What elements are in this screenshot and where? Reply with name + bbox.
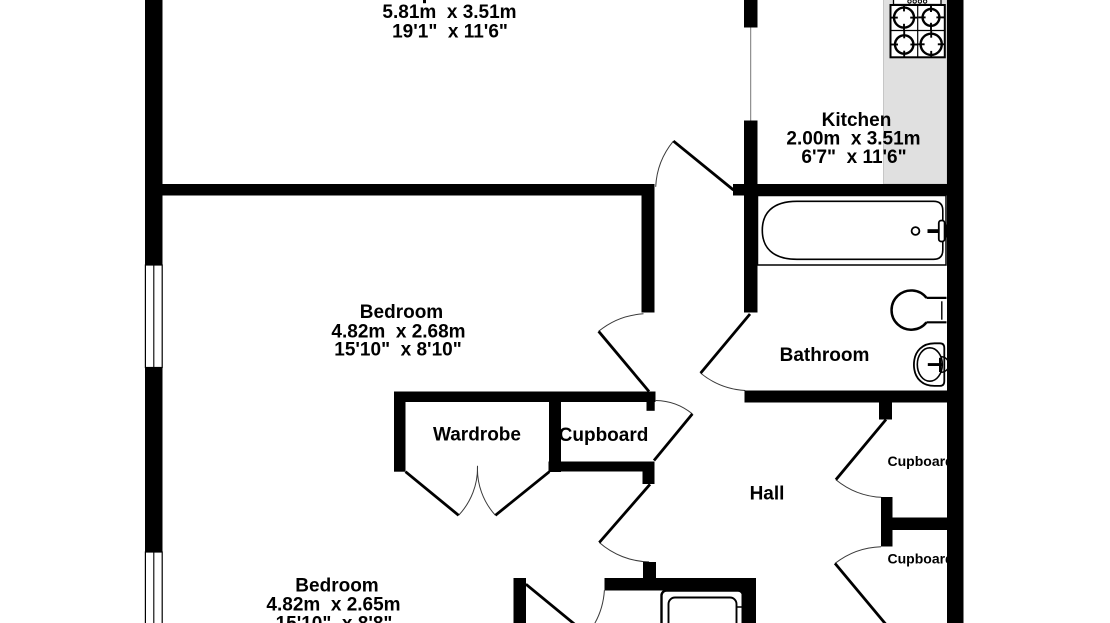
svg-text:15'10" x 8'10": 15'10" x 8'10" (334, 340, 461, 361)
svg-text:15'10" x 8'8": 15'10" x 8'8" (276, 614, 393, 623)
svg-text:Bedroom: Bedroom (295, 576, 378, 597)
svg-text:Cupboard: Cupboard (559, 425, 649, 446)
svg-text:6'7" x 11'6": 6'7" x 11'6" (801, 147, 906, 168)
svg-text:Bathroom: Bathroom (780, 345, 870, 366)
svg-text:19'1" x 11'6": 19'1" x 11'6" (392, 21, 508, 42)
svg-text:Hall: Hall (750, 484, 785, 505)
svg-text:Cupboard: Cupboard (888, 453, 954, 469)
svg-text:4.82m x 2.65m: 4.82m x 2.65m (266, 595, 400, 616)
svg-text:Cupboard: Cupboard (888, 551, 954, 567)
svg-text:Bedroom: Bedroom (360, 302, 443, 323)
svg-text:Wardrobe: Wardrobe (433, 425, 521, 446)
svg-text:5.81m x 3.51m: 5.81m x 3.51m (382, 2, 516, 23)
